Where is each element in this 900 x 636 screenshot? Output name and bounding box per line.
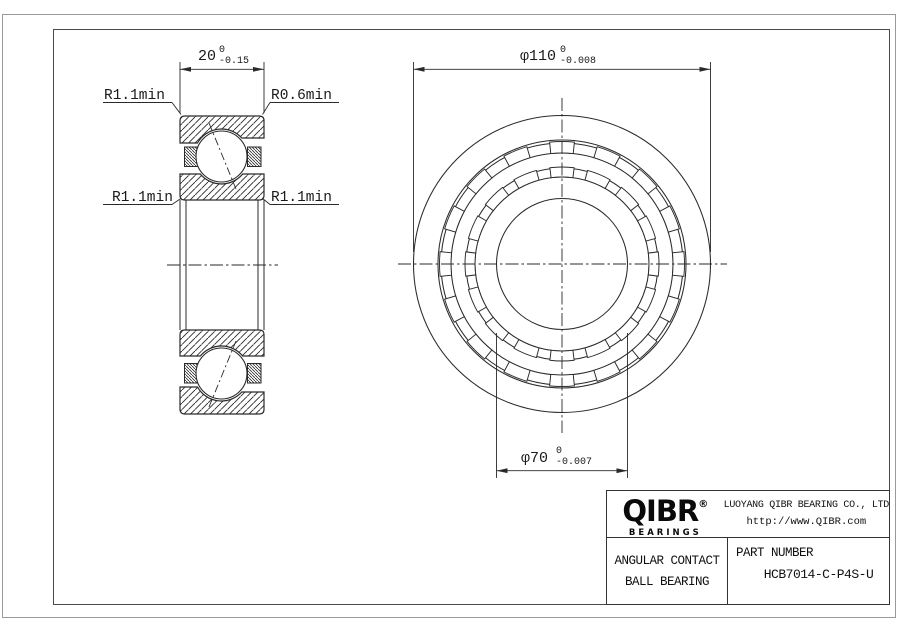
cage-top-right-section (248, 147, 262, 167)
registered-mark-icon: ® (698, 499, 708, 510)
ball-pocket-inner (638, 287, 656, 312)
ball-pocket-outer (660, 206, 680, 232)
label-r-mid-right: R1.1min (271, 190, 332, 206)
ball-pocket-inner (468, 287, 486, 312)
dim-width-value: 20 (198, 48, 216, 65)
dim-od-tol-lower: -0.008 (560, 56, 596, 67)
dimension-arrow-icon (414, 67, 425, 72)
company-info: LUOYANG QIBR BEARING CO., LTD http://www… (724, 491, 889, 537)
dim-width-tol-upper: 0 (219, 45, 225, 56)
label-r-top-right: R0.6min (271, 88, 332, 104)
ball-pocket-inner (514, 170, 539, 188)
label-r-top-left: R1.1min (104, 88, 165, 104)
ball-pocket-outer (594, 147, 620, 167)
title-block: QIBR® BEARINGS LUOYANG QIBR BEARING CO.,… (606, 490, 890, 605)
ball-pocket-outer (632, 169, 657, 194)
ball-pocket-outer (445, 296, 465, 322)
dim-od-value: φ110 (520, 48, 556, 65)
bearing-type-line2: BALL BEARING (625, 575, 709, 589)
brand-name: QIBR (622, 494, 698, 528)
bearing-type-line1: ANGULAR CONTACT (614, 554, 719, 568)
cross-section-view (167, 116, 278, 414)
ball-bottom (196, 348, 247, 399)
ball-pocket-inner (514, 340, 539, 358)
dimension-arrow-icon (617, 468, 628, 473)
ball-pocket-outer (594, 362, 620, 382)
ball-pocket-inner (485, 187, 508, 210)
dim-bore-tol-upper: 0 (556, 446, 562, 457)
ball-pocket-inner (638, 216, 656, 241)
ball-top (196, 131, 247, 182)
brand-logo: QIBR® BEARINGS (607, 491, 724, 537)
ball-pocket-outer (445, 206, 465, 232)
dim-width-tol-lower: -0.15 (219, 56, 249, 67)
dimension-arrow-icon (497, 468, 508, 473)
bearing-type-cell: ANGULAR CONTACT BALL BEARING (607, 538, 728, 604)
ball-pocket-outer (660, 296, 680, 322)
brand-subtitle: BEARINGS (629, 528, 702, 538)
ball-pocket-outer (467, 334, 492, 359)
front-view (398, 98, 727, 433)
part-number-cell: PART NUMBER HCB7014-C-P4S-U (728, 538, 889, 604)
brand-logo-row: QIBR® (622, 492, 708, 530)
dim-od-tol-upper: 0 (560, 45, 566, 56)
dimension-width-20: 200-0.15 (180, 45, 264, 113)
ball-pocket-outer (504, 362, 530, 382)
dimension-arrow-icon (253, 67, 264, 72)
ball-pocket-outer (632, 334, 657, 359)
label-r-mid-left: R1.1min (112, 190, 173, 206)
ball-pocket-inner (468, 216, 486, 241)
dim-bore-value: φ70 (521, 450, 548, 467)
part-number-value: HCB7014-C-P4S-U (752, 567, 874, 582)
ball-pocket-outer (467, 169, 492, 194)
dimension-arrow-icon (180, 67, 191, 72)
ball-pocket-inner (485, 317, 508, 340)
ball-pocket-inner (615, 187, 638, 210)
ball-pocket-outer (504, 147, 530, 167)
dim-bore-tol-lower: -0.007 (556, 457, 592, 468)
company-name: LUOYANG QIBR BEARING CO., LTD (724, 500, 889, 511)
dimension-arrow-icon (700, 67, 711, 72)
title-block-bottom-row: ANGULAR CONTACT BALL BEARING PART NUMBER… (607, 538, 889, 604)
ball-pocket-inner (585, 340, 610, 358)
company-website: http://www.QIBR.com (746, 516, 866, 528)
ball-pocket-inner (615, 317, 638, 340)
part-number-label: PART NUMBER (736, 546, 889, 560)
drawing-page: 200-0.15R1.1minR0.6minR1.1minR1.1minφ110… (0, 0, 900, 636)
leader-line (262, 198, 270, 205)
ball-pocket-inner (585, 170, 610, 188)
cage-bottom-right-section (248, 364, 262, 384)
title-block-top-row: QIBR® BEARINGS LUOYANG QIBR BEARING CO.,… (607, 491, 889, 538)
